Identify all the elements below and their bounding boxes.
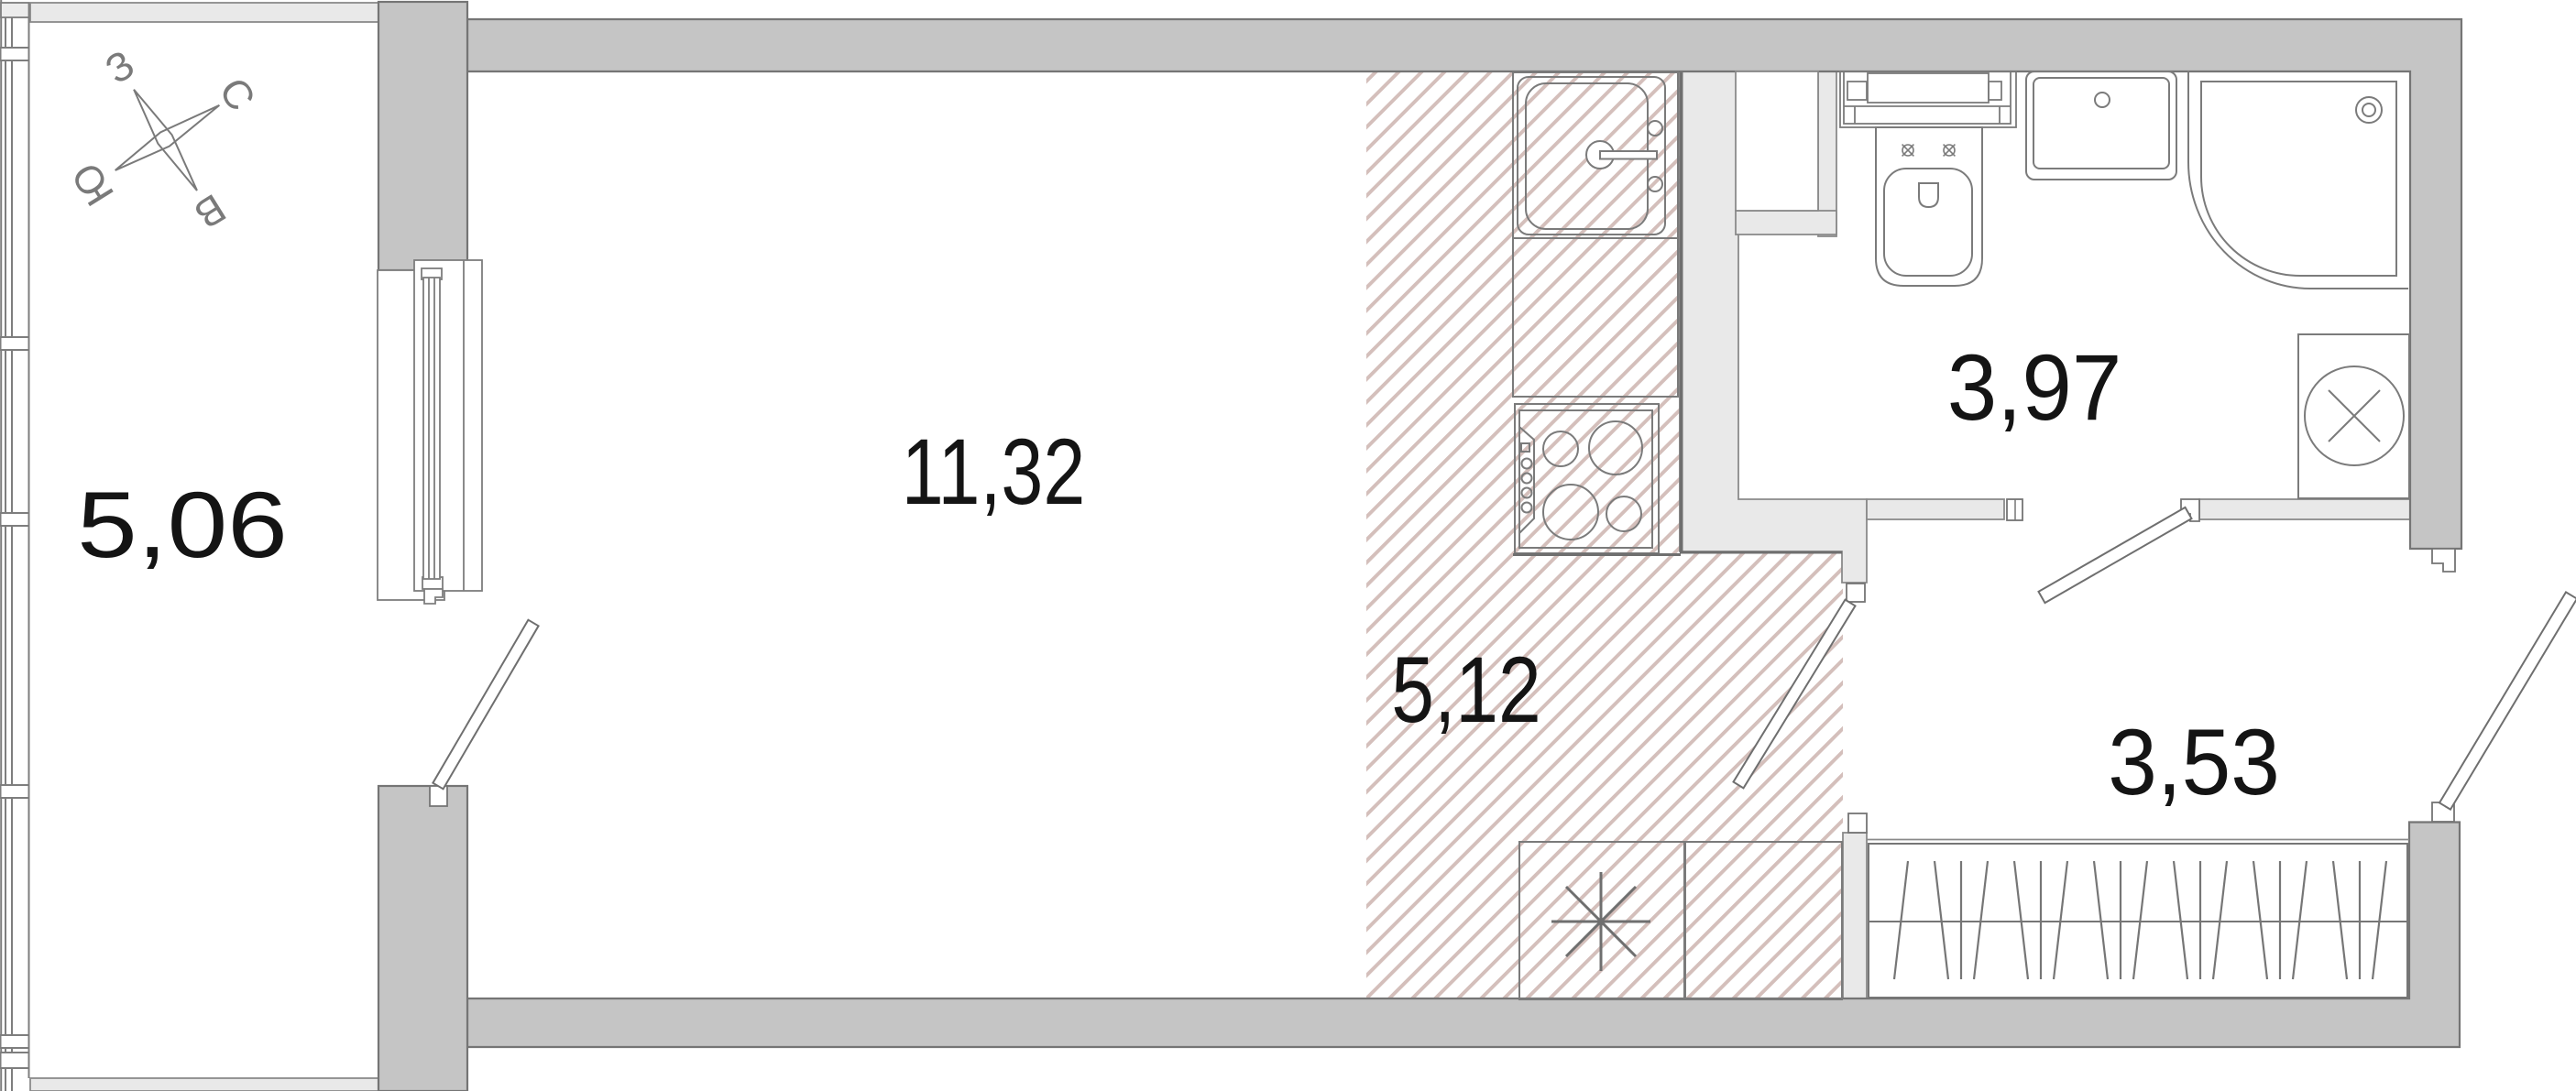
svg-text:5,06: 5,06 (77, 473, 288, 577)
svg-text:11,32: 11,32 (902, 420, 1086, 524)
svg-text:3,97: 3,97 (1947, 335, 2122, 440)
svg-text:5,12: 5,12 (1391, 637, 1541, 742)
svg-text:3,53: 3,53 (2108, 711, 2280, 815)
